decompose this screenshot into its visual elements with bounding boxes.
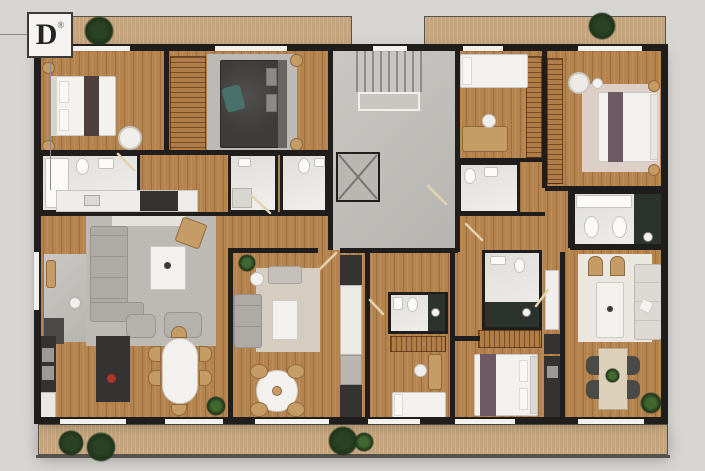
shower-dark (485, 302, 539, 327)
wall (328, 48, 333, 250)
armchair (118, 126, 142, 150)
rattan-chair (287, 364, 305, 379)
basin-2 (612, 216, 627, 238)
wardrobe (170, 56, 206, 152)
plant-icon (354, 432, 374, 452)
table-decor (164, 262, 171, 269)
dining-table-oval (162, 338, 198, 404)
plant-icon (588, 12, 616, 40)
wall-left (34, 44, 41, 424)
side-table (592, 78, 603, 89)
kitchen-unit (544, 334, 561, 354)
pillow (266, 94, 277, 112)
wall (38, 150, 328, 155)
headboard (278, 60, 287, 148)
kitchen-counter (340, 355, 362, 385)
dining-chair-dark (627, 380, 640, 399)
headboard (530, 356, 538, 414)
dining-chair-dark (627, 356, 640, 375)
elevator (336, 152, 380, 202)
window (255, 419, 329, 424)
pillow (59, 109, 69, 131)
registered-mark: ® (57, 20, 64, 30)
window (66, 46, 130, 51)
appliance (547, 366, 558, 378)
wardrobe (478, 330, 542, 348)
window (165, 419, 223, 424)
shower (232, 188, 252, 208)
vanity-counter (576, 195, 632, 208)
nightstand (648, 164, 660, 176)
plant-icon (206, 396, 226, 416)
wall (455, 48, 460, 252)
shower-head (522, 308, 531, 317)
kitchen-island (96, 336, 130, 402)
wall-right (661, 44, 668, 424)
dining-chair (171, 326, 187, 338)
dining-chair (199, 370, 212, 386)
dining-chair (610, 256, 625, 276)
window (578, 419, 644, 424)
wall (228, 248, 318, 253)
double-bed (598, 92, 658, 162)
wall (542, 48, 547, 188)
bench (268, 266, 302, 284)
pouf (126, 314, 156, 338)
wall (228, 252, 233, 418)
sofa-center (234, 294, 262, 348)
armchair (568, 72, 590, 94)
sink (238, 158, 251, 167)
window (368, 419, 420, 424)
kitchen-lower-unit (340, 385, 362, 418)
wall (365, 252, 370, 418)
dining-chair (148, 346, 161, 362)
kitchen-sink (84, 195, 100, 206)
staircase (356, 50, 422, 92)
wall (164, 48, 169, 152)
wall (545, 186, 665, 191)
logo-rule-vertical (50, 60, 51, 190)
side-table (250, 272, 264, 286)
sink (484, 167, 498, 177)
wardrobe (547, 58, 563, 184)
pillow (59, 81, 69, 103)
dining-chair (148, 370, 161, 386)
logo-letter: D (36, 20, 58, 50)
pillow (519, 360, 528, 382)
toilet (298, 158, 310, 174)
window (215, 46, 287, 51)
wall-bottom (34, 417, 668, 424)
plant-icon (238, 254, 256, 272)
wardrobe (526, 56, 542, 158)
rattan-chair (287, 402, 305, 417)
shower-head (431, 308, 440, 317)
wall (340, 248, 458, 253)
window (463, 46, 503, 51)
pillow (462, 57, 472, 85)
fridge (340, 285, 362, 355)
wall (455, 158, 545, 162)
logo-rule-horizontal (0, 34, 28, 35)
desk-chair (482, 114, 496, 128)
oven (42, 366, 54, 380)
door-panel (545, 270, 559, 330)
table-center-decor (272, 386, 282, 396)
plant-icon (84, 16, 114, 46)
pillow (519, 388, 528, 410)
pillow (394, 394, 403, 416)
toilet (407, 297, 418, 312)
plant-icon (86, 432, 116, 462)
toilet (76, 158, 89, 175)
floorplan-scene: D ® (0, 0, 705, 471)
dining-chair (199, 346, 212, 362)
pillow (266, 68, 277, 86)
nightstand (42, 62, 55, 74)
floor-lamp (68, 296, 82, 310)
nightstand (290, 54, 303, 67)
coffee-table (272, 300, 298, 340)
entry-console (46, 260, 56, 288)
balcony-bottom-rail (36, 455, 670, 458)
dining-chair-dark (586, 356, 599, 375)
sink (490, 256, 506, 265)
desk (462, 126, 508, 152)
wall (570, 246, 665, 250)
window (578, 46, 642, 51)
kettle-red (107, 374, 116, 383)
window (373, 46, 407, 51)
oven (42, 348, 54, 362)
rattan-chair (250, 402, 268, 417)
basin-1 (584, 216, 599, 238)
sink (314, 158, 325, 167)
table-decor (607, 306, 613, 312)
balcony-top-right (424, 16, 666, 46)
window (60, 419, 126, 424)
wall (450, 252, 455, 418)
window (455, 419, 515, 424)
bed-runner (480, 354, 496, 416)
plant-icon (58, 430, 84, 456)
bed-runner (608, 92, 623, 162)
shower-head (643, 232, 653, 242)
dining-chair-dark (586, 380, 599, 399)
sink (393, 297, 403, 310)
toilet (464, 168, 476, 184)
plant-icon (605, 368, 620, 383)
wall (560, 252, 565, 418)
headboard (650, 94, 658, 160)
desk-chair (414, 364, 427, 377)
cooktop (140, 191, 178, 211)
wall (568, 190, 572, 248)
wall (38, 212, 328, 216)
wall (455, 212, 545, 216)
wall (452, 336, 480, 341)
plant-icon (640, 392, 662, 414)
entry-door-strip (34, 252, 39, 310)
nightstand (648, 80, 660, 92)
sink (98, 158, 114, 169)
dining-chair (588, 256, 603, 276)
headboard (50, 76, 57, 136)
stair-landing (358, 92, 420, 111)
rattan-chair (250, 364, 268, 379)
appliance-column (40, 336, 56, 392)
bed-runner (84, 76, 99, 136)
wardrobe (390, 336, 446, 352)
kitchen-tall-unit (340, 255, 362, 285)
fridge (40, 392, 56, 418)
desk (428, 354, 442, 390)
toilet (514, 258, 525, 273)
brand-logo: D ® (27, 12, 73, 58)
